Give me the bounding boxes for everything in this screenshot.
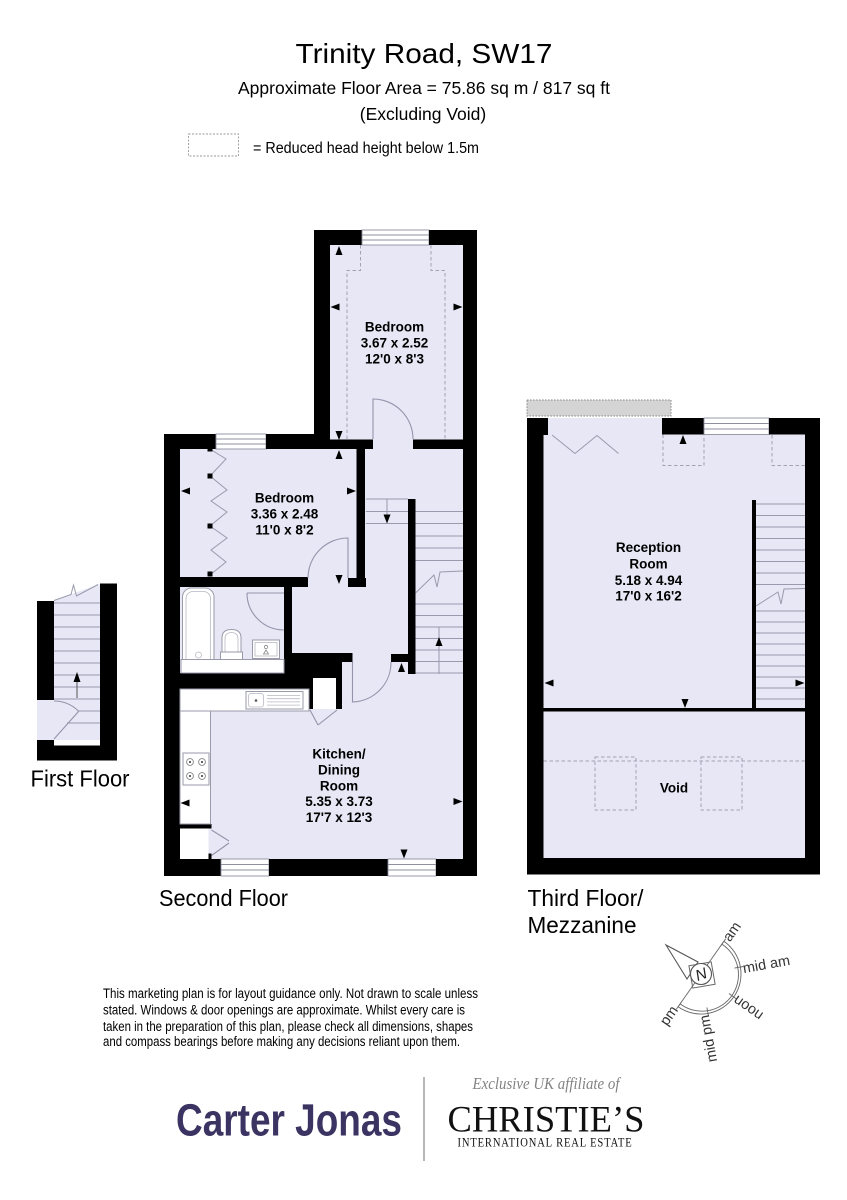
svg-text:17'7 x 12'3: 17'7 x 12'3 xyxy=(306,810,373,825)
svg-text:3.36 x 2.48: 3.36 x 2.48 xyxy=(251,507,319,522)
svg-text:Dining: Dining xyxy=(318,763,360,778)
svg-text:Second Floor: Second Floor xyxy=(159,885,288,911)
svg-text:= Reduced head height below 1.: = Reduced head height below 1.5m xyxy=(253,140,479,157)
svg-text:Room: Room xyxy=(320,779,358,794)
svg-text:Bedroom: Bedroom xyxy=(255,491,314,506)
svg-text:Approximate Floor Area = 75.86: Approximate Floor Area = 75.86 sq m / 81… xyxy=(238,78,610,98)
svg-text:stated. Windows & door opening: stated. Windows & door openings are appr… xyxy=(103,1003,465,1018)
svg-text:Void: Void xyxy=(660,781,688,796)
svg-text:INTERNATIONAL REAL ESTATE: INTERNATIONAL REAL ESTATE xyxy=(458,1136,633,1150)
svg-text:and compass bearings before ma: and compass bearings before making any d… xyxy=(103,1034,460,1049)
svg-text:5.35 x 3.73: 5.35 x 3.73 xyxy=(305,794,373,809)
svg-text:Reception: Reception xyxy=(616,540,681,555)
svg-text:Kitchen/: Kitchen/ xyxy=(312,747,366,762)
svg-text:3.67 x 2.52: 3.67 x 2.52 xyxy=(361,336,429,351)
svg-text:5.18 x 4.94: 5.18 x 4.94 xyxy=(615,573,683,588)
svg-text:(Excluding Void): (Excluding Void) xyxy=(360,104,486,124)
svg-text:Bedroom: Bedroom xyxy=(365,320,424,335)
svg-text:CHRISTIE’S: CHRISTIE’S xyxy=(448,1100,645,1141)
svg-text:12'0 x 8'3: 12'0 x 8'3 xyxy=(365,352,424,367)
svg-text:Trinity Road, SW17: Trinity Road, SW17 xyxy=(296,38,553,69)
svg-text:Third Floor/: Third Floor/ xyxy=(528,885,645,911)
svg-text:Mezzanine: Mezzanine xyxy=(528,912,637,938)
svg-text:This marketing plan is for lay: This marketing plan is for layout guidan… xyxy=(103,986,478,1001)
svg-text:17'0 x 16'2: 17'0 x 16'2 xyxy=(615,589,681,604)
svg-text:Carter Jonas: Carter Jonas xyxy=(176,1095,402,1146)
svg-text:First Floor: First Floor xyxy=(31,766,130,792)
svg-text:Room: Room xyxy=(629,557,667,572)
svg-text:11'0 x 8'2: 11'0 x 8'2 xyxy=(255,523,313,538)
svg-text:taken in the preparation of th: taken in the preparation of this plan, p… xyxy=(103,1019,473,1034)
svg-text:Exclusive UK affiliate of: Exclusive UK affiliate of xyxy=(472,1074,622,1093)
